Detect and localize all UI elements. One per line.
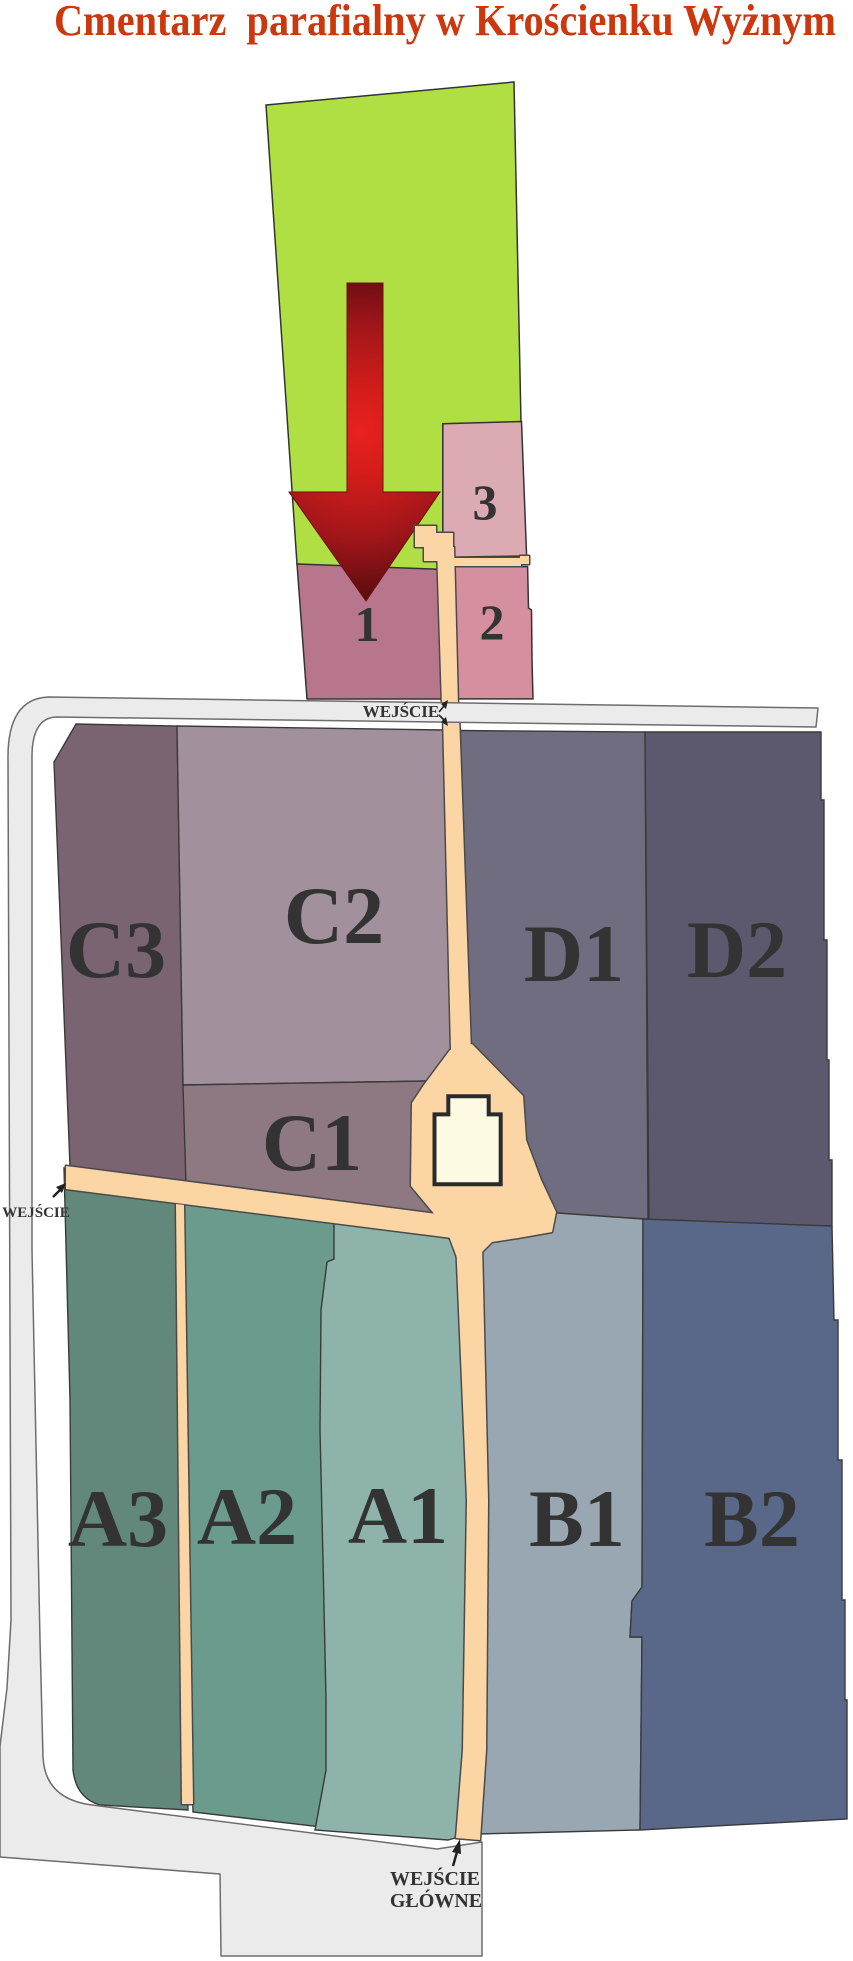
svg-text:B2: B2	[704, 1473, 800, 1564]
svg-text:2: 2	[480, 594, 505, 650]
svg-text:WEJŚCIE: WEJŚCIE	[363, 702, 440, 721]
svg-text:C3: C3	[66, 904, 166, 995]
svg-text:D1: D1	[524, 908, 624, 999]
svg-text:B1: B1	[529, 1473, 625, 1564]
svg-text:D2: D2	[687, 904, 787, 995]
svg-text:Cmentarz parafialny w Kroście: Cmentarz parafialny w Krościenku Wyżnym	[54, 0, 836, 45]
svg-text:GŁÓWNE: GŁÓWNE	[390, 1888, 482, 1912]
svg-text:A2: A2	[197, 1471, 297, 1562]
svg-text:A1: A1	[348, 1470, 448, 1561]
svg-text:WEJŚCIE: WEJŚCIE	[2, 1204, 70, 1221]
svg-text:1: 1	[355, 596, 380, 652]
svg-text:WEJŚCIE: WEJŚCIE	[390, 1866, 480, 1890]
svg-text:3: 3	[473, 474, 498, 530]
svg-text:A3: A3	[68, 1473, 168, 1564]
svg-text:C2: C2	[284, 870, 384, 961]
svg-text:C1: C1	[262, 1097, 362, 1188]
